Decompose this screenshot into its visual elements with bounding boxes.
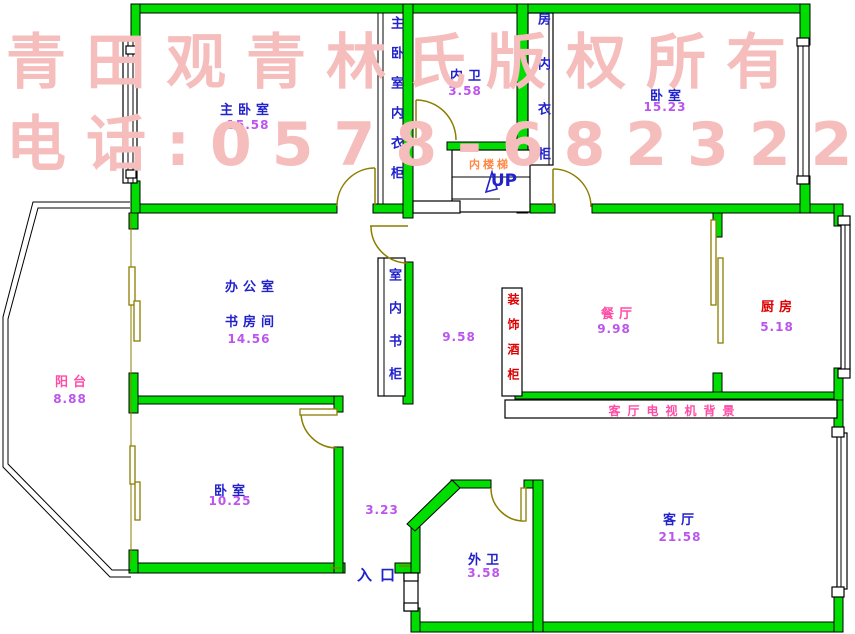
outer-bath-area: 3.58 bbox=[467, 566, 501, 580]
stairs-up-label: UP bbox=[491, 171, 517, 191]
outer-bath-door-leaf bbox=[521, 488, 526, 521]
stairs-label: 内楼梯 bbox=[469, 156, 511, 172]
wall-mid-left bbox=[131, 204, 337, 213]
floor-plan-page: 主卧室 15.58 内卫 3.58 卧室 15.23 办公室 书房间 14.56… bbox=[0, 0, 855, 634]
kitchen-sliding-door-panel bbox=[711, 220, 716, 305]
bedroom-bl-area: 10.25 bbox=[209, 494, 252, 508]
kitchen-sliding-door-panel bbox=[718, 258, 723, 343]
entrance-label: 入口 bbox=[357, 564, 403, 585]
master-bedroom-door-arc bbox=[337, 168, 375, 206]
master-bedroom-label: 主卧室 bbox=[220, 99, 274, 118]
wall-outerbath-right bbox=[533, 480, 543, 632]
wall-bedroom-bl-right bbox=[334, 447, 343, 573]
wine-cabinet-label: 装饰酒柜 bbox=[505, 293, 522, 393]
built-ins bbox=[378, 13, 837, 418]
window-cap bbox=[797, 38, 809, 46]
bedroom-bl-door-arc bbox=[301, 412, 337, 448]
wall-kitchen-stub-bottom bbox=[713, 373, 722, 392]
wall-balcony-stub-top bbox=[129, 213, 138, 229]
floor-plan-drawing bbox=[0, 0, 855, 634]
dining-area: 9.98 bbox=[597, 322, 631, 336]
corridor-area: 9.58 bbox=[442, 330, 476, 344]
window-cap bbox=[126, 46, 136, 54]
wall-outerbath-left-a bbox=[411, 524, 420, 573]
living-room-label: 客厅 bbox=[663, 509, 699, 528]
window-cap bbox=[404, 573, 418, 581]
window-cap bbox=[832, 587, 844, 597]
balcony-sliding-panel bbox=[134, 301, 140, 341]
office-area: 14.56 bbox=[228, 332, 271, 346]
balcony-area: 8.88 bbox=[53, 392, 87, 406]
master-bedroom-area: 15.58 bbox=[227, 118, 270, 132]
wall-left-b bbox=[131, 181, 140, 213]
wall-balcony-stub-mid bbox=[129, 373, 138, 413]
kitchen-area: 5.18 bbox=[760, 320, 794, 334]
wall-mid-b bbox=[530, 204, 555, 213]
master-wardrobe-line bbox=[378, 13, 383, 204]
window-cap bbox=[838, 369, 850, 378]
window-master-left bbox=[123, 40, 137, 183]
window-living-right bbox=[837, 433, 847, 589]
window-cap bbox=[126, 170, 136, 178]
inner-bath-label: 内卫 bbox=[450, 65, 486, 84]
bedroom-tr-area: 15.23 bbox=[644, 100, 687, 114]
bedroom-bl-door-leaf bbox=[300, 409, 337, 415]
tv-wall-label: 客厅电视机背景 bbox=[608, 402, 741, 419]
balcony-sliding-panel bbox=[130, 446, 135, 484]
entry-hall-area: 3.23 bbox=[365, 503, 399, 517]
balcony-sliding-panel bbox=[129, 267, 135, 305]
window-cap bbox=[832, 427, 844, 437]
wall-top bbox=[131, 4, 810, 13]
inner-bath-door-arc bbox=[416, 100, 456, 140]
wall-office-bottom bbox=[131, 396, 343, 404]
wall-bottom bbox=[411, 622, 843, 632]
dining-label: 餐厅 bbox=[601, 303, 637, 322]
window-cap bbox=[797, 176, 809, 184]
living-room-area: 21.58 bbox=[659, 530, 702, 544]
master-wardrobe-label: 主卧室内衣柜 bbox=[386, 16, 405, 196]
window-cap bbox=[838, 216, 850, 225]
inner-bath-area: 3.58 bbox=[448, 84, 482, 98]
bookcase-label: 室内书柜 bbox=[384, 268, 403, 400]
balcony-label: 阳台 bbox=[55, 371, 91, 390]
balcony-sliding-panel bbox=[135, 482, 140, 520]
outer-bath-door-arc bbox=[491, 488, 524, 521]
bedroom-tr-door-arc bbox=[553, 169, 591, 207]
wall-bedroom-bl-bottom bbox=[131, 563, 345, 573]
stairs-landing-box bbox=[413, 201, 460, 213]
office-label-line1: 办公室 bbox=[225, 276, 279, 295]
kitchen-label: 厨房 bbox=[761, 296, 797, 315]
wall-innerbath-bottom bbox=[447, 142, 517, 150]
wall-tv bbox=[515, 392, 835, 399]
office-label-line2: 书房间 bbox=[225, 311, 279, 330]
room-wardrobe-label: 房内衣柜 bbox=[533, 12, 552, 192]
wall-left-a bbox=[131, 4, 140, 42]
window-cap bbox=[404, 603, 418, 611]
wall-outerbath-diagonal bbox=[407, 480, 460, 531]
